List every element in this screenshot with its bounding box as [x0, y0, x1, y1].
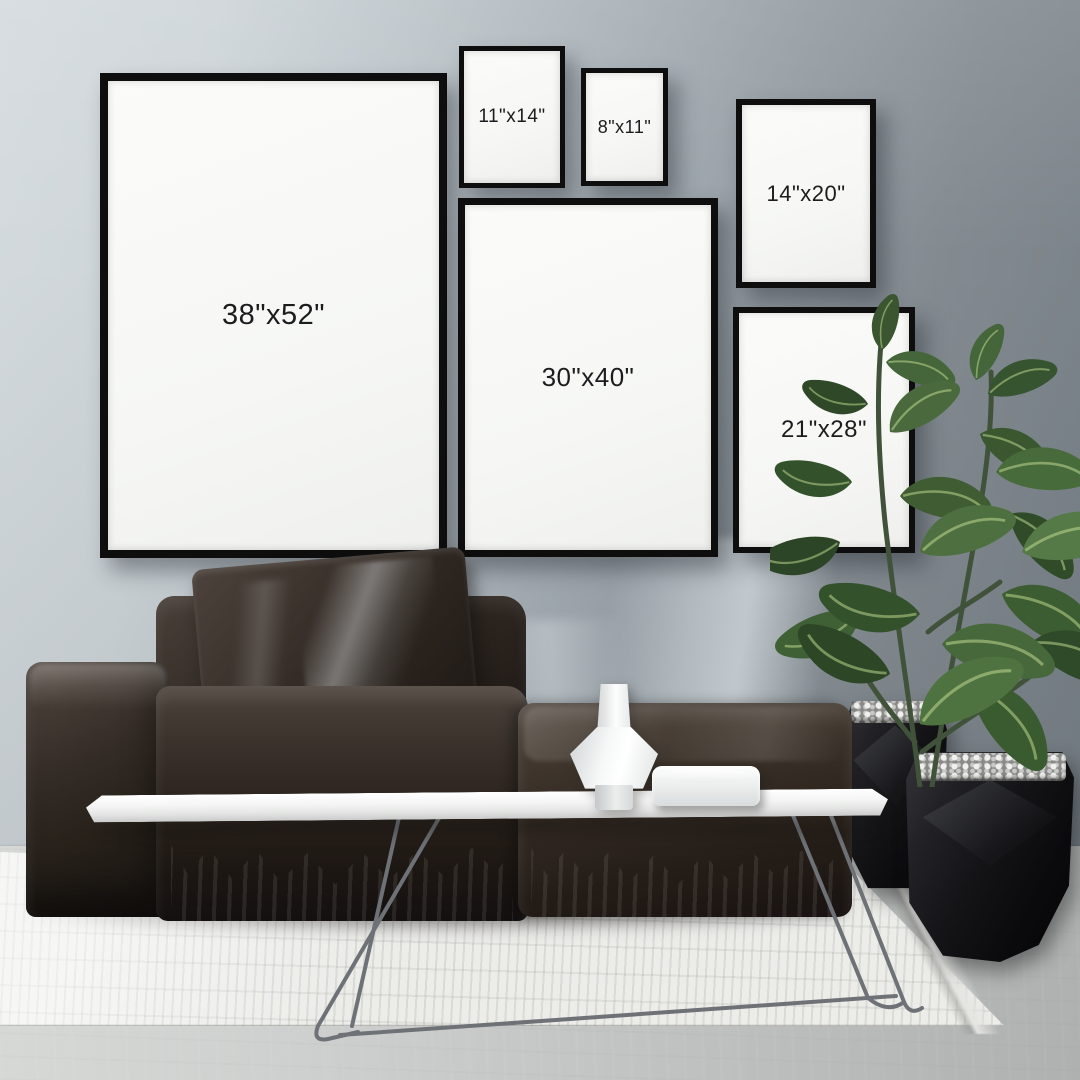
frame-38x52: 38"x52" [100, 73, 447, 558]
frame-matte: 14"x20" [742, 105, 870, 282]
table-shadow [96, 818, 876, 844]
frame-8x11: 8"x11" [581, 68, 668, 186]
frame-matte: 8"x11" [586, 73, 663, 181]
vase-neck [597, 684, 630, 731]
frame-11x14: 11"x14" [459, 46, 565, 188]
frame-size-label: 14"x20" [766, 181, 845, 207]
frame-matte: 11"x14" [464, 51, 560, 183]
frame-size-label: 8"x11" [598, 117, 651, 138]
vase-base [595, 785, 634, 810]
sofa-armrest [26, 662, 170, 917]
ceramic-vase [570, 684, 658, 810]
frame-matte: 38"x52" [108, 81, 439, 550]
living-room-frame-size-mockup: 38"x52" 11"x14" 8"x11" 14"x20" 30"x40" 2… [0, 0, 1080, 1080]
vase-body [570, 727, 658, 789]
frame-14x20: 14"x20" [736, 99, 876, 288]
frame-size-label: 30"x40" [542, 362, 635, 393]
frame-matte: 30"x40" [465, 205, 711, 550]
ceramic-bowl [652, 766, 760, 806]
frame-size-label: 38"x52" [222, 299, 325, 332]
frame-size-label: 11"x14" [478, 106, 545, 128]
frame-30x40: 30"x40" [458, 198, 718, 557]
